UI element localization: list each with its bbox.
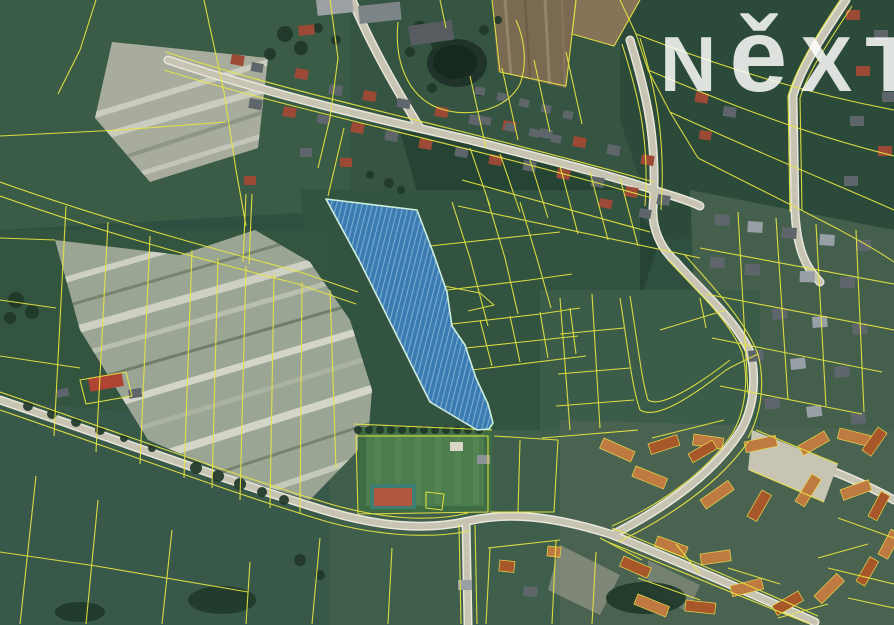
watermark-letter-t: T xyxy=(865,20,894,108)
watermark-letter-e-caron: ě xyxy=(729,0,800,114)
watermark-letter-x: X xyxy=(800,20,865,108)
watermark-letter-n: N xyxy=(660,20,729,108)
sports-field xyxy=(358,427,492,512)
listing-photo-aerial-map: NěXT xyxy=(0,0,894,625)
brand-watermark: NěXT xyxy=(660,4,894,108)
tennis-court xyxy=(374,488,412,506)
